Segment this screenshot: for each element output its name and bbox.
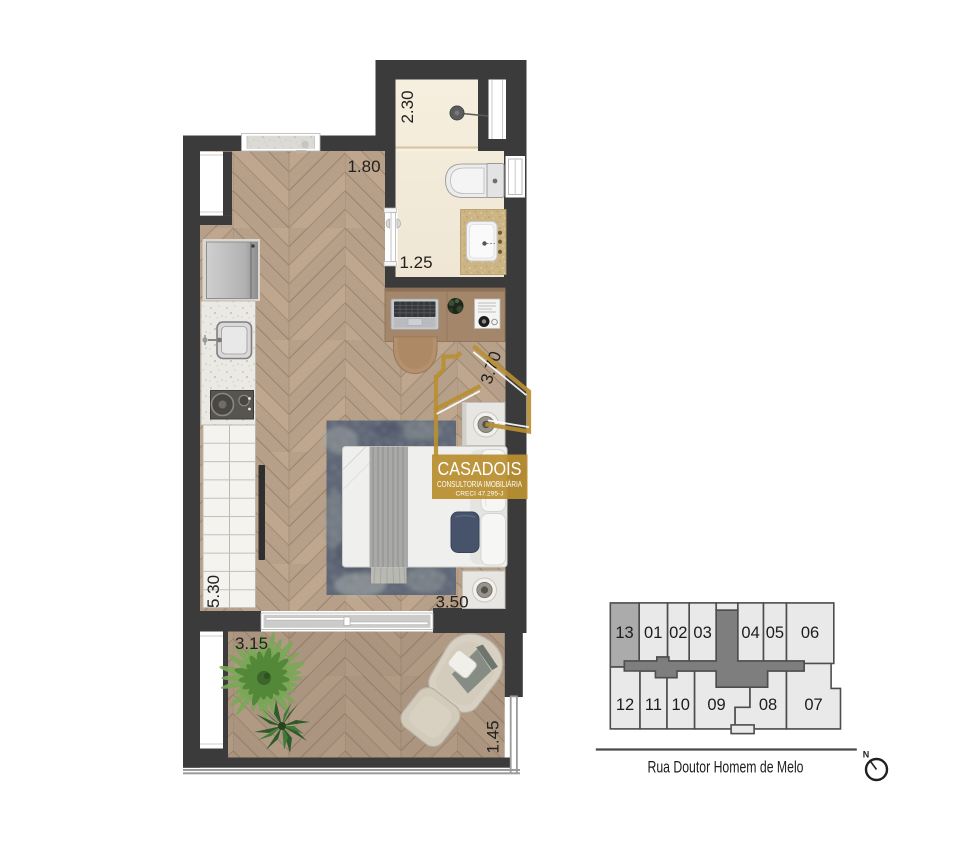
- svg-text:CASADOIS: CASADOIS: [438, 459, 522, 479]
- svg-text:11: 11: [645, 696, 662, 714]
- svg-text:13: 13: [615, 624, 633, 642]
- svg-text:1.25: 1.25: [399, 253, 432, 272]
- svg-text:08: 08: [759, 696, 777, 714]
- svg-text:01: 01: [644, 624, 662, 642]
- svg-text:2.30: 2.30: [398, 90, 417, 123]
- svg-text:3.15: 3.15: [235, 634, 268, 653]
- svg-text:06: 06: [801, 624, 819, 642]
- svg-text:3.50: 3.50: [435, 593, 468, 612]
- svg-text:1.45: 1.45: [483, 720, 502, 753]
- svg-text:5.30: 5.30: [204, 575, 223, 608]
- svg-text:10: 10: [672, 696, 690, 714]
- svg-text:07: 07: [804, 696, 822, 714]
- svg-text:05: 05: [766, 624, 784, 642]
- svg-text:03: 03: [693, 624, 711, 642]
- svg-text:1.80: 1.80: [347, 157, 380, 176]
- svg-text:CRECI 47.295-J: CRECI 47.295-J: [456, 491, 504, 498]
- svg-text:CONSULTORIA IMOBILIÁRIA: CONSULTORIA IMOBILIÁRIA: [437, 480, 523, 489]
- svg-text:N: N: [863, 750, 870, 760]
- svg-text:09: 09: [707, 696, 725, 714]
- svg-text:04: 04: [741, 624, 759, 642]
- svg-text:02: 02: [669, 624, 687, 642]
- svg-text:Rua Doutor Homem de Melo: Rua Doutor Homem de Melo: [648, 758, 804, 777]
- svg-text:12: 12: [616, 696, 634, 714]
